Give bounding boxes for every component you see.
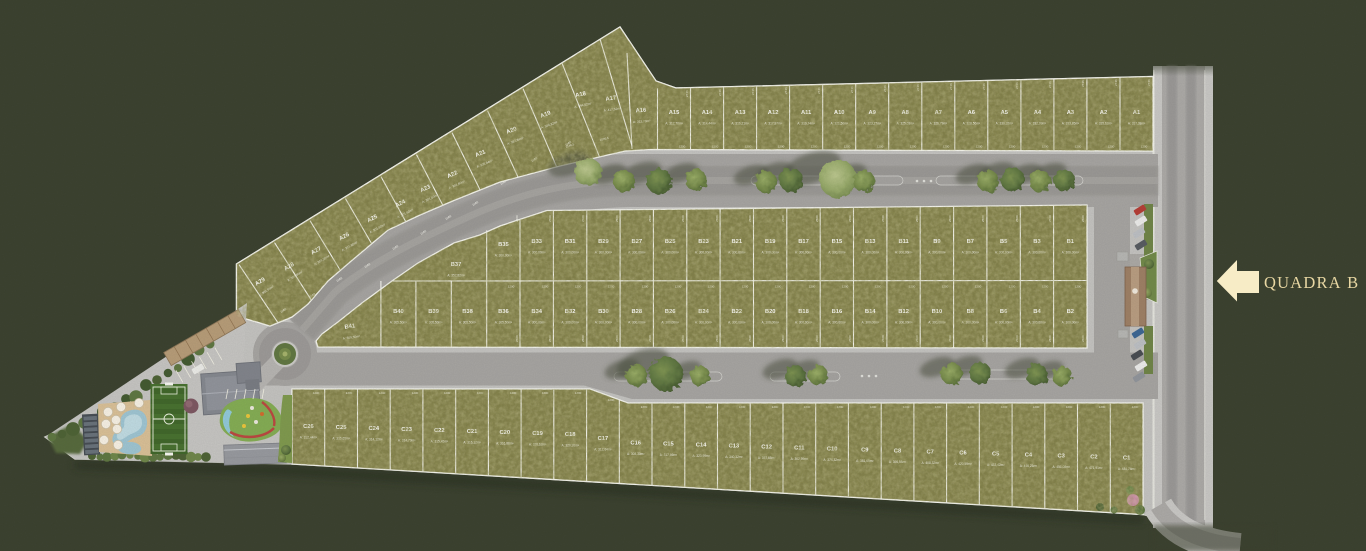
- svg-text:QUADRA B: QUADRA B: [1264, 273, 1359, 292]
